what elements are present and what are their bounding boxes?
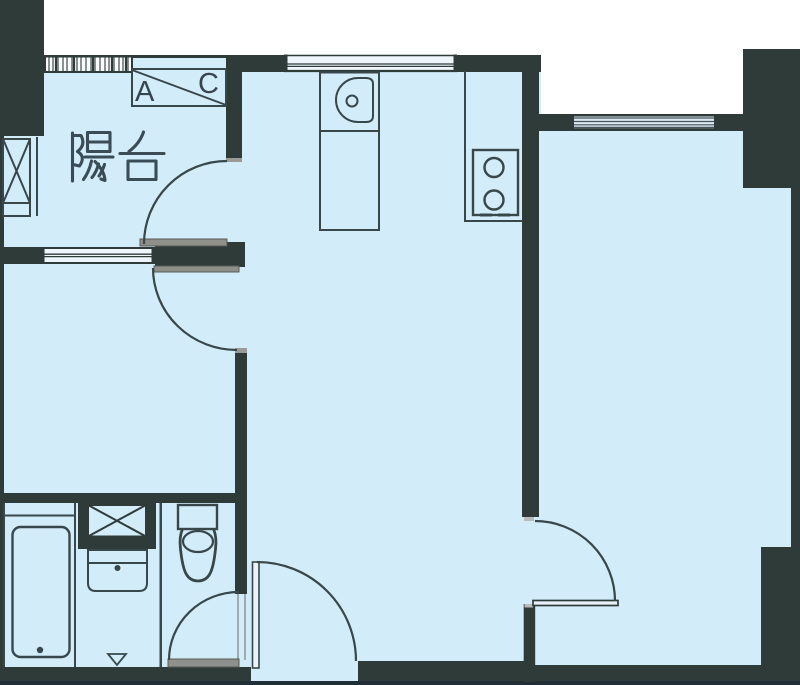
svg-text:A: A xyxy=(135,76,155,108)
svg-text:C: C xyxy=(198,68,219,100)
